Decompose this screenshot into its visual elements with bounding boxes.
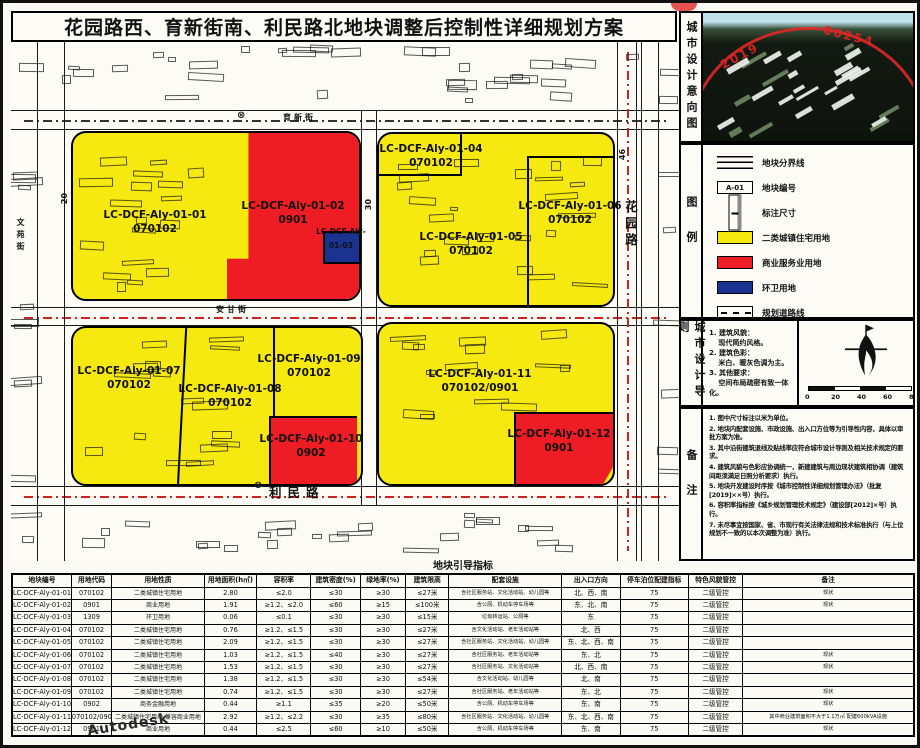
table-header-cell: 地块编号 (12, 574, 71, 587)
table-cell: ≤100米 (406, 599, 449, 611)
building-footprint (125, 521, 151, 528)
building-footprint (660, 68, 679, 76)
table-cell: 75 (620, 723, 688, 736)
table-cell: 1.03 (204, 649, 256, 661)
fill-swatch-icon (717, 256, 753, 269)
table-cell: ≤30 (311, 661, 360, 673)
table-cell: 东、北 (562, 686, 620, 698)
table-cell: 现状 (743, 649, 914, 661)
design-intent-section: 城市设计意向图 2019 00254 (679, 11, 915, 143)
building-footprint (158, 181, 183, 188)
table-cell: ≤50米 (406, 699, 449, 711)
note-item: 1. 图中尺寸标注以米为单位。 (709, 414, 908, 423)
table-cell: 070102 (71, 686, 111, 698)
guideline-line: 空间布局疏密有致一体化。 (709, 378, 794, 398)
table-cell: LC-DCF-Aly-01-09 (12, 686, 71, 698)
parcel-label: 01-03 (329, 241, 353, 250)
dimension-label: 30 (364, 199, 373, 210)
table-cell: LC-DCF-Aly-01-11 (12, 711, 71, 723)
building-footprint (512, 74, 524, 80)
parcel-label: LC-DCF-Aly-01-09070102 (257, 353, 360, 380)
table-cell: 现状 (743, 686, 914, 698)
table-cell: 二级管控 (688, 599, 742, 611)
table-cell: ≤80米 (406, 711, 449, 723)
building-footprint (166, 460, 201, 466)
scale-tick-label: 20 (831, 393, 840, 401)
table-cell: 二类城镇住宅用地 (112, 686, 205, 698)
building-footprint (68, 66, 80, 71)
building-footprint (181, 398, 204, 405)
parcel-id: LC-DCF-Aly-01-08 (178, 383, 281, 397)
table-cell: 其中商业建筑面积不大于1.1万㎡ 配建600kVA设施 (743, 711, 914, 723)
table-cell: 2.92 (204, 711, 256, 723)
road-name-label: 育新街 (283, 112, 316, 123)
building-footprint (409, 196, 437, 206)
building-footprint (133, 170, 164, 177)
table-cell: ≤27米 (406, 661, 449, 673)
table-row: LC-DCF-Aly-01-09070102二类城镇住宅用地0.74≥1.2、≤… (12, 686, 914, 698)
table-cell: 070102 (71, 624, 111, 636)
table-cell: ≤30 (311, 637, 360, 649)
legend-item: 商业服务业用地 (717, 255, 913, 270)
building-footprint (536, 540, 558, 547)
table-cell: ≥1.2、≤1.5 (257, 649, 311, 661)
table-cell: ≥10 (360, 723, 405, 736)
building-footprint (403, 548, 439, 553)
legend-item: 标注尺寸 (717, 205, 913, 220)
table-cell: 二级管控 (688, 686, 742, 698)
parcel-code: 0901 (507, 442, 610, 456)
guideline-line: 1. 建筑风貌： (709, 328, 794, 338)
table-cell: ≥30 (360, 612, 405, 624)
table-cell: 现状 (743, 661, 914, 673)
building-footprint (258, 532, 271, 538)
plan-sheet: 花园路西、育新街南、利民路北地块调整后控制性详细规划方案 (0, 0, 920, 748)
table-cell: 北、西、南 (562, 587, 620, 599)
table-cell: ≥30 (360, 624, 405, 636)
table-header-cell: 容积率 (257, 574, 311, 587)
scale-tick-label: 40 (857, 393, 866, 401)
table-cell: 0.74 (204, 686, 256, 698)
building-footprint (546, 230, 556, 238)
building-footprint (11, 319, 39, 327)
building-footprint (293, 47, 329, 54)
table-cell: ≤50米 (406, 723, 449, 736)
table-cell: 75 (620, 649, 688, 661)
building-footprint (152, 52, 163, 58)
dimension-label: 46 (618, 149, 627, 160)
parcel-id: LC-DCF-Aly- (316, 227, 366, 236)
guideline-label: 城市设计导则 (681, 321, 703, 405)
table-cell: 二级管控 (688, 661, 742, 673)
stamp-edge-mark (671, 3, 697, 11)
table-cell: ≤2.0 (257, 587, 311, 599)
table-cell: 二级管控 (688, 723, 742, 736)
building-footprint (101, 528, 110, 536)
table-cell: ≥30 (360, 649, 405, 661)
building-footprint (515, 235, 531, 241)
legend-item-label: 标注尺寸 (762, 207, 796, 219)
building-footprint (267, 540, 278, 549)
building-footprint (19, 63, 44, 72)
table-cell: 75 (620, 624, 688, 636)
table-cell: 现状 (743, 723, 914, 736)
table-cell: 75 (620, 699, 688, 711)
table-cell: 东、南 (562, 723, 620, 736)
table-cell (743, 674, 914, 686)
table-cell: ≥15 (360, 599, 405, 611)
scale-tick-label: 60 (883, 393, 892, 401)
table-cell: LC-DCF-Aly-01-07 (12, 661, 71, 673)
guideline-line: 2. 建筑色彩： (709, 348, 794, 358)
table-cell: ≤60 (311, 599, 360, 611)
table-cell: 含公厕、机动车停车场等 (449, 599, 562, 611)
code-swatch-icon: A-01 (717, 181, 753, 194)
table-cell: 北、西 (562, 624, 620, 636)
table-row: LC-DCF-Aly-01-06070102二类城镇住宅用地1.03≥1.2、≤… (12, 649, 914, 661)
table-header-cell: 特色风貌管控 (688, 574, 742, 587)
road-name-label: 利民路 (269, 482, 325, 501)
table-cell: ≥30 (360, 587, 405, 599)
building-footprint (312, 534, 322, 539)
table-cell: 1.91 (204, 599, 256, 611)
table-cell: 东、北、西、南 (562, 711, 620, 723)
legend-section: 图例 地块分界线A-01地块编号标注尺寸二类城镇住宅用地商业服务业用地环卫用地规… (679, 143, 915, 319)
scale-tick-label: 80m (909, 393, 913, 401)
building-footprint (447, 87, 468, 93)
table-cell: LC-DCF-Aly-01-10 (12, 699, 71, 711)
zoning-map: LC-DCF-Aly-01-01070102LC-DCF-Aly-01-0209… (11, 42, 679, 561)
parcel-label: LC-DCF-Aly-01-11070102/0901 (428, 368, 531, 395)
table-cell: ≤30 (311, 587, 360, 599)
table-cell (743, 624, 914, 636)
table-cell: 商务金融用地 (112, 699, 205, 711)
building-footprint (464, 520, 475, 529)
legend-item: A-01地块编号 (717, 180, 913, 195)
building-footprint (517, 266, 533, 275)
table-cell: ≤2.5 (257, 723, 311, 736)
road-name-label: 文苑街 (15, 218, 26, 254)
table-cell: ≤30 (311, 711, 360, 723)
table-cell: 商业用地 (112, 599, 205, 611)
table-cell: LC-DCF-Aly-01-08 (12, 674, 71, 686)
building-footprint (658, 172, 679, 177)
parcel-indicator-table: 地块编号用地代码用地性质用地面积(h㎡)容积率建筑密度(%)绿地率(%)建筑限高… (11, 573, 915, 737)
table-cell: 二级管控 (688, 649, 742, 661)
table-cell: 75 (620, 686, 688, 698)
table-cell: ≥1.2、≤1.5 (257, 674, 311, 686)
table-row: LC-DCF-Aly-01-05070102二类城镇住宅用地2.09≥1.2、≤… (12, 637, 914, 649)
building-footprint (136, 217, 148, 225)
table-cell: LC-DCF-Aly-01-02 (12, 599, 71, 611)
table-cell: ≥1.2、≤1.5 (257, 661, 311, 673)
table-cell: ≤30 (311, 624, 360, 636)
table-cell: 二级管控 (688, 699, 742, 711)
building-footprint (22, 536, 34, 543)
table-cell: 070102 (71, 649, 111, 661)
design-guideline-section: 城市设计导则 1. 建筑风貌： 现代简约风格。2. 建筑色彩： 米白、暖灰色调为… (679, 319, 915, 407)
table-cell: 0.44 (204, 699, 256, 711)
scale-bar (808, 386, 912, 391)
building-footprint (440, 533, 459, 542)
boundary-swatch-icon (717, 156, 753, 169)
building-footprint (551, 161, 561, 171)
table-cell: 二类城镇住宅用地 (112, 674, 205, 686)
building-footprint (79, 241, 104, 251)
table-cell: 070102 (71, 661, 111, 673)
parcel-id: LC-DCF-Aly-01-09 (257, 353, 360, 367)
table-cell (743, 637, 914, 649)
table-cell: 现状 (743, 699, 914, 711)
table-cell: 东、北、西、南 (562, 637, 620, 649)
table-cell: 1.38 (204, 674, 256, 686)
notes-label: 备注 (681, 409, 703, 559)
building-footprint (485, 81, 507, 89)
table-cell: 2.09 (204, 637, 256, 649)
parcel-id: LC-DCF-Aly-01-12 (507, 428, 610, 442)
building-footprint (110, 199, 142, 207)
table-cell: 二类城镇住宅用地 (112, 637, 205, 649)
table-cell: ≤27米 (406, 624, 449, 636)
building-footprint (450, 207, 459, 212)
table-cell: 北、西、南 (562, 661, 620, 673)
table-cell: 二级管控 (688, 624, 742, 636)
north-arrow-icon (839, 323, 893, 379)
table-cell: ≤40 (311, 649, 360, 661)
table-cell: ≥1.2、≤1.5 (257, 624, 311, 636)
building-footprint (474, 398, 510, 404)
building-footprint (659, 95, 678, 103)
table-header-cell: 配套设施 (449, 574, 562, 587)
legend-item: 规划道路线 (717, 305, 913, 317)
table-cell: 二级管控 (688, 587, 742, 599)
legend-item-label: 二类城镇住宅用地 (762, 232, 830, 244)
table-cell: 北、南 (562, 674, 620, 686)
building-footprint (18, 185, 31, 190)
building-footprint (462, 247, 478, 255)
sheet-title-bar: 花园路西、育新街南、利民路北地块调整后控制性详细规划方案 (11, 11, 677, 42)
building-footprint (331, 47, 362, 57)
building-footprint (515, 169, 532, 179)
building-footprint (82, 538, 106, 548)
building-footprint (329, 534, 349, 543)
table-cell: 环卫用地 (112, 612, 205, 624)
building-footprint (134, 433, 147, 441)
table-cell: LC-DCF-Aly-01-06 (12, 649, 71, 661)
building-footprint (560, 365, 570, 372)
building-footprint (422, 47, 450, 56)
table-cell: ≥30 (360, 674, 405, 686)
road-huayuan-road-east-lane (641, 42, 659, 561)
parcel-id: LC-DCF-Aly-01-10 (259, 433, 362, 447)
table-cell: ≥1.2、≤1.5 (257, 686, 311, 698)
table-cell: ≤30 (311, 686, 360, 698)
table-cell: 070102 (71, 637, 111, 649)
table-cell: ≤54米 (406, 674, 449, 686)
indicator-table-section: 地块引导指标 地块编号用地代码用地性质用地面积(h㎡)容积率建筑密度(%)绿地率… (11, 561, 915, 727)
note-item: 7. 未尽事宜按国家、省、市现行有关法律法规和技术标准执行（与上位规划不一致的以… (709, 521, 908, 538)
table-cell: ≥30 (360, 686, 405, 698)
table-cell: 二级管控 (688, 612, 742, 624)
table-cell: ≤60 (311, 723, 360, 736)
building-footprint (224, 545, 238, 553)
table-cell: LC-DCF-Aly-01-03 (12, 612, 71, 624)
road-west-street (37, 42, 65, 561)
building-footprint (160, 220, 181, 230)
building-footprint (196, 541, 220, 548)
building-footprint (112, 65, 128, 72)
scale-tick-label: 0 (805, 393, 810, 401)
table-cell: 75 (620, 661, 688, 673)
table-header-cell: 用地性质 (112, 574, 205, 587)
legend-item-label: 商业服务业用地 (762, 257, 822, 269)
table-header-cell: 备注 (743, 574, 914, 587)
building-footprint (188, 72, 224, 82)
intersection-marker-icon: ⊗ (254, 480, 262, 491)
road-name-label: 花园路 (621, 200, 640, 250)
building-footprint (459, 63, 470, 72)
parcel-id: LC-DCF-Aly-01-11 (428, 368, 531, 382)
right-panel: 城市设计意向图 2019 00254 图例 地块分界线A-01地块编号标注尺寸二… (679, 11, 915, 561)
parcel-code: 070102 (257, 367, 360, 381)
building-footprint (525, 526, 553, 531)
table-cell: ≤27米 (406, 649, 449, 661)
red-seal-arc (703, 27, 913, 141)
building-footprint (146, 268, 170, 277)
guideline-line: 3. 其他要求： (709, 368, 794, 378)
building-footprint (142, 341, 167, 349)
sheet-title: 花园路西、育新街南、利民路北地块调整后控制性详细规划方案 (64, 13, 624, 40)
building-footprint (241, 46, 250, 53)
table-cell: 1309 (71, 612, 111, 624)
table-cell: ≤27米 (406, 637, 449, 649)
building-footprint (477, 232, 494, 241)
building-footprint (11, 173, 36, 183)
note-item: 4. 建筑风貌与色彩应协调统一，新建建筑与周边现状建筑相协调（建筑间距须满足日照… (709, 463, 908, 480)
table-row: LC-DCF-Aly-01-07070102二类城镇住宅用地1.53≥1.2、≤… (12, 661, 914, 673)
building-footprint (61, 75, 70, 84)
building-footprint (465, 98, 473, 103)
table-cell: ≤27米 (406, 686, 449, 698)
table-cell: LC-DCF-Aly-01-05 (12, 637, 71, 649)
table-row: LC-DCF-Aly-01-01070102二类城镇住宅用地2.80≤2.0≤3… (12, 587, 914, 599)
building-footprint (518, 525, 529, 532)
table-cell: 0.76 (204, 624, 256, 636)
building-footprint (161, 196, 182, 202)
building-footprint (200, 443, 229, 452)
building-footprint (19, 304, 33, 311)
table-cell: 070102 (71, 587, 111, 599)
table-cell: ≤30 (311, 674, 360, 686)
note-item: 2. 地块内配套设施、市政设施、出入口方位等为引导性内容，具体以审批方案为准。 (709, 425, 908, 442)
parcel-code: 070102 (77, 379, 180, 393)
table-cell: 含文化活动站、老年活动站等 (449, 624, 562, 636)
parcel-label: LC-DCF-Aly-01-120901 (507, 428, 610, 455)
table-row: LC-DCF-Aly-01-031309环卫用地0.06≤0.1≤30≥30≤1… (12, 612, 914, 624)
legend-item: 环卫用地 (717, 280, 913, 295)
parcel-label: LC-DCF-Aly-01-100902 (259, 433, 362, 460)
building-footprint (657, 447, 678, 456)
building-footprint (398, 164, 418, 170)
table-cell: 2.80 (204, 587, 256, 599)
parcel-code: 070102/0901 (428, 382, 531, 396)
building-footprint (535, 176, 563, 181)
table-cell: LC-DCF-Aly-01-12 (12, 723, 71, 736)
legend-item-label: 地块分界线 (762, 157, 805, 169)
table-cell: ≥1.2、≤2.0 (257, 599, 311, 611)
table-cell: LC-DCF-Aly-01-01 (12, 587, 71, 599)
building-footprint (426, 370, 436, 375)
building-footprint (550, 91, 573, 102)
table-cell: 含社区服务站、老年活动站等 (449, 649, 562, 661)
table-cell: 垃圾转运站、公厕等 (449, 612, 562, 624)
legend-item-label: 环卫用地 (762, 282, 796, 294)
guideline-line: 米白、暖灰色调为主。 (709, 358, 794, 368)
building-footprint (358, 523, 373, 532)
table-cell: ≤27米 (406, 587, 449, 599)
aerial-intent-image: 2019 00254 (703, 13, 913, 141)
building-footprint (570, 182, 585, 188)
building-footprint (454, 159, 479, 167)
table-cell: 含社区服务站、文化活动站、幼儿园等 (449, 587, 562, 599)
fill-swatch-icon (717, 281, 753, 294)
table-cell: 1.53 (204, 661, 256, 673)
table-row: LC-DCF-Aly-01-08070102二类城镇住宅用地1.38≥1.2、≤… (12, 674, 914, 686)
table-cell: 0.44 (204, 723, 256, 736)
building-footprint (168, 56, 176, 62)
dimension-label: 20 (60, 193, 69, 204)
table-cell: 含公厕、机动车停车场等 (449, 699, 562, 711)
building-footprint (165, 95, 199, 100)
table-cell: 含社区服务站、文化活动站等 (449, 661, 562, 673)
table-cell: 二级管控 (688, 637, 742, 649)
building-footprint (446, 79, 465, 87)
building-footprint (541, 79, 566, 89)
road-limin-road (11, 486, 679, 506)
building-footprint (464, 513, 475, 518)
building-footprint (117, 282, 126, 292)
table-cell: 含社区服务站、文化活动站、幼儿园等 (449, 711, 562, 723)
building-footprint (626, 54, 639, 60)
table-cell: 0902 (71, 699, 111, 711)
building-footprint (11, 475, 35, 482)
building-footprint (317, 90, 329, 99)
table-cell: ≥30 (360, 661, 405, 673)
table-cell: 0.06 (204, 612, 256, 624)
dash-swatch-icon (717, 306, 753, 317)
table-cell: LC-DCF-Aly-01-04 (12, 624, 71, 636)
table-cell: 75 (620, 674, 688, 686)
table-cell: ≥20 (360, 699, 405, 711)
building-footprint (131, 182, 153, 192)
road-yuxin-street (11, 110, 679, 130)
parcel-id: LC-DCF-Aly-01-06 (518, 200, 621, 214)
legend-item-label: 地块编号 (762, 182, 796, 194)
parcel-code: 0902 (259, 447, 362, 461)
building-footprint (529, 59, 552, 69)
building-footprint (189, 61, 218, 69)
table-cell: ≤15米 (406, 612, 449, 624)
table-cell: 二类城镇住宅用地 (112, 587, 205, 599)
table-cell: 现状 (743, 587, 914, 599)
building-footprint (558, 213, 596, 218)
building-footprint (100, 157, 128, 167)
building-footprint (145, 361, 161, 370)
table-cell: 东、北、南 (562, 599, 620, 611)
table-row: LC-DCF-Aly-01-100902商务金融用地0.44≥1.1≤35≥20… (12, 699, 914, 711)
table-cell: 含社区服务站、文化活动站、幼儿园等 (449, 637, 562, 649)
dim-swatch-icon (729, 195, 742, 231)
